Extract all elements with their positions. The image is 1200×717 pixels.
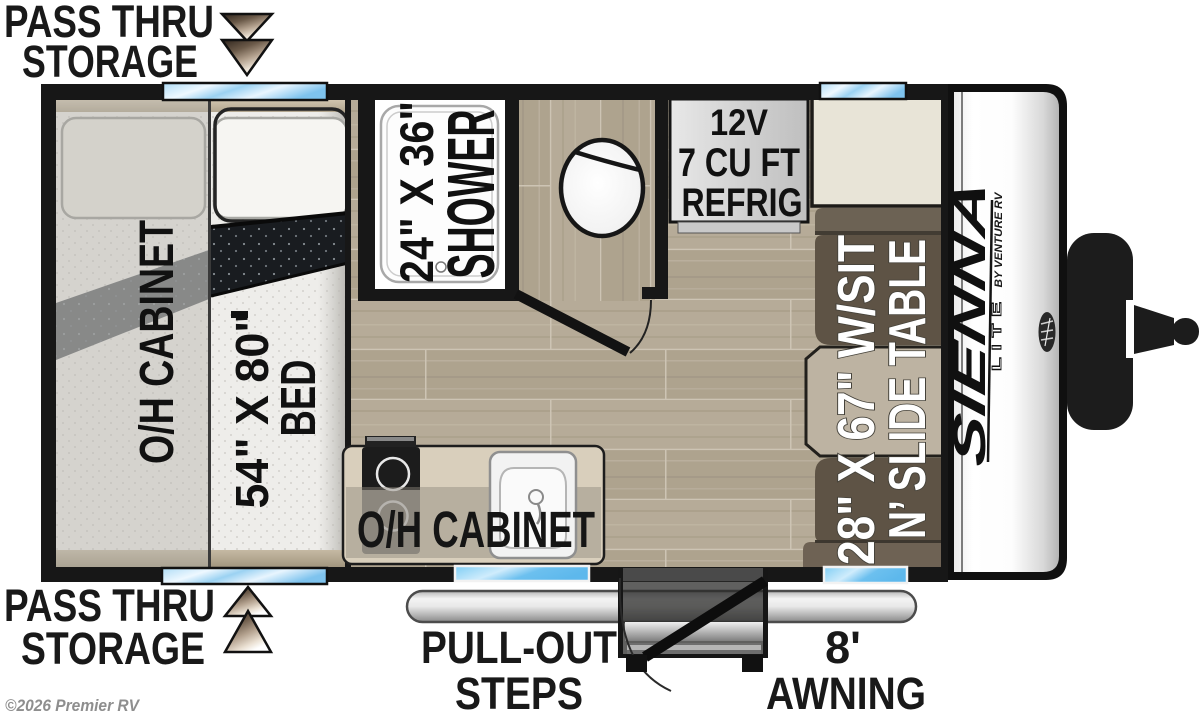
svg-text:54" X 80": 54" X 80" bbox=[226, 312, 278, 509]
svg-text:BED: BED bbox=[272, 360, 326, 437]
svg-text:O/H CABINET: O/H CABINET bbox=[357, 501, 595, 558]
svg-text:STORAGE: STORAGE bbox=[21, 623, 205, 674]
svg-text:LITE: LITE bbox=[989, 295, 1004, 371]
svg-text:8': 8' bbox=[825, 622, 861, 673]
svg-text:PULL-OUT: PULL-OUT bbox=[421, 622, 617, 673]
svg-text:AWNING: AWNING bbox=[766, 668, 926, 717]
svg-text:28" X 67" W/SIT: 28" X 67" W/SIT bbox=[828, 235, 886, 565]
svg-text:©2026 Premier RV: ©2026 Premier RV bbox=[5, 696, 141, 715]
svg-text:STEPS: STEPS bbox=[455, 668, 583, 717]
svg-text:SIENNA: SIENNA bbox=[943, 175, 994, 470]
svg-text:STORAGE: STORAGE bbox=[22, 36, 198, 87]
svg-text:BY VENTURE RV: BY VENTURE RV bbox=[993, 191, 1005, 288]
svg-text:O/H CABINET: O/H CABINET bbox=[131, 220, 184, 464]
svg-text:7 CU FT: 7 CU FT bbox=[678, 141, 800, 185]
svg-text:REFRIG: REFRIG bbox=[682, 181, 803, 225]
svg-text:N’ SLIDE TABLE: N’ SLIDE TABLE bbox=[879, 239, 937, 539]
svg-text:SHOWER: SHOWER bbox=[434, 110, 509, 279]
svg-text:12V: 12V bbox=[710, 102, 768, 143]
